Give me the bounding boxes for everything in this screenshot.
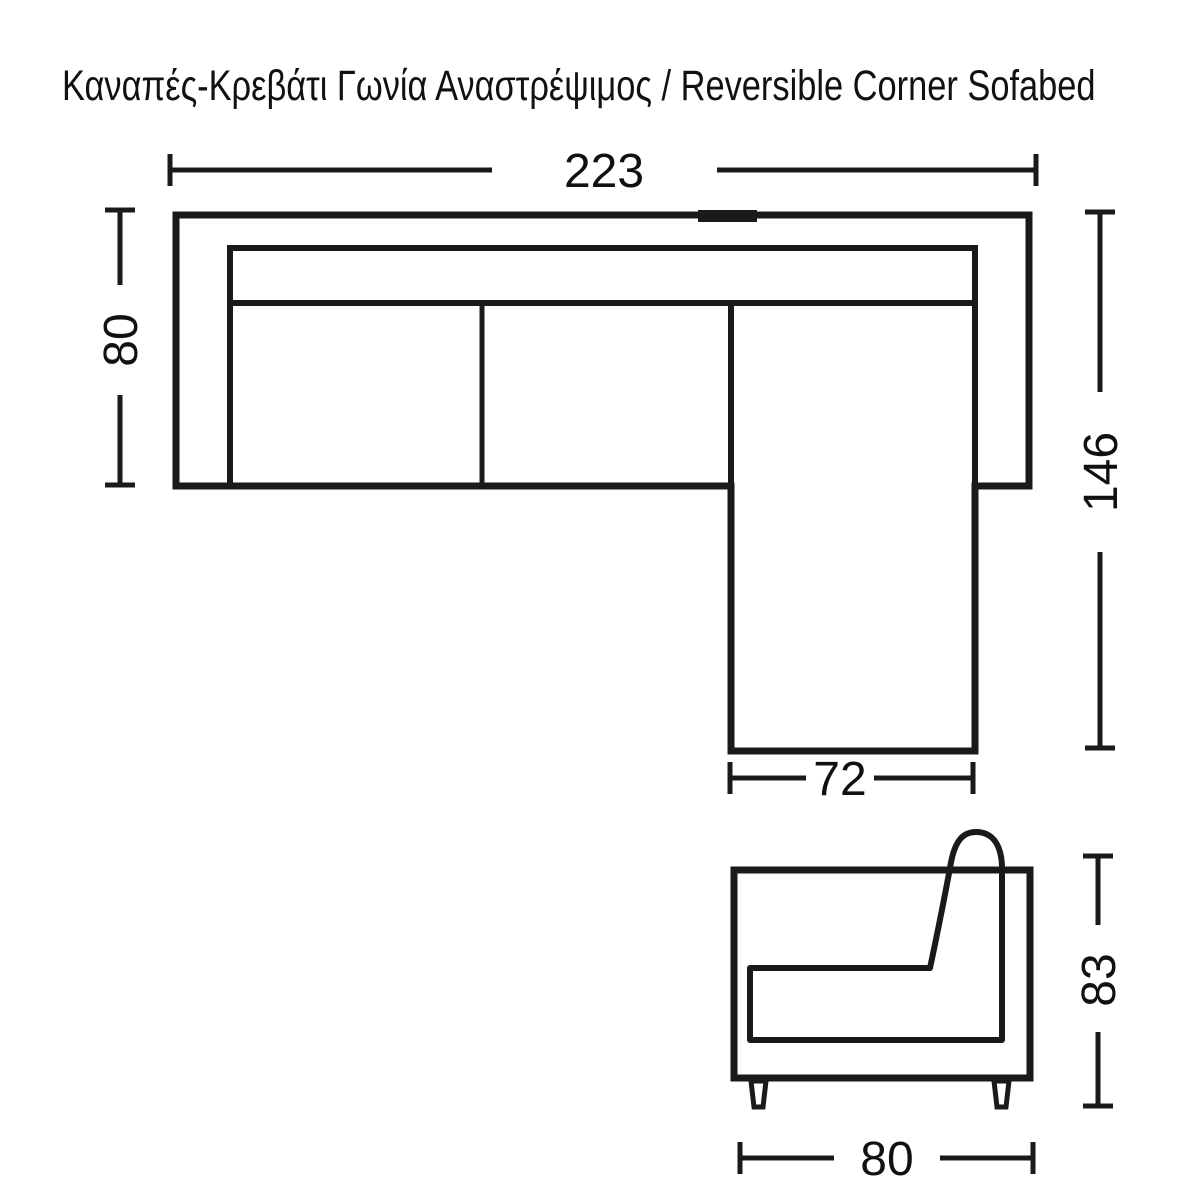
dim-80-bottom-label: 80 [860,1133,913,1186]
dim-146-label: 146 [1075,432,1128,512]
dim-overall-width: 223 [170,145,1036,198]
seat-area [234,306,971,482]
side-view-leg-right [994,1081,1009,1107]
dim-depth-bottom: 80 [740,1133,1033,1186]
dim-height: 83 [1073,856,1126,1106]
dim-223-label: 223 [564,145,644,198]
top-view-diagram [176,210,1029,751]
dim-80-left-label: 80 [95,313,148,366]
sofabed-drawing: 223 80 146 72 [0,0,1200,1200]
side-view-leg-left [751,1081,766,1107]
dim-chaise-length: 146 [1075,212,1128,748]
dim-72-label: 72 [813,753,866,806]
side-view-diagram [734,832,1030,1107]
side-view-frame [734,870,1030,1078]
dim-depth-left: 80 [95,210,148,485]
dim-chaise-width: 72 [730,753,973,806]
sofabed-dimension-diagram: Καναπές-Κρεβάτι Γωνία Αναστρέψιμος / Rev… [0,0,1200,1200]
dim-83-label: 83 [1073,953,1126,1006]
side-view-cushion-backrest [750,832,1002,1040]
chaise-area [735,482,971,747]
backrest-band [230,248,975,303]
top-edge-notch [698,210,757,222]
